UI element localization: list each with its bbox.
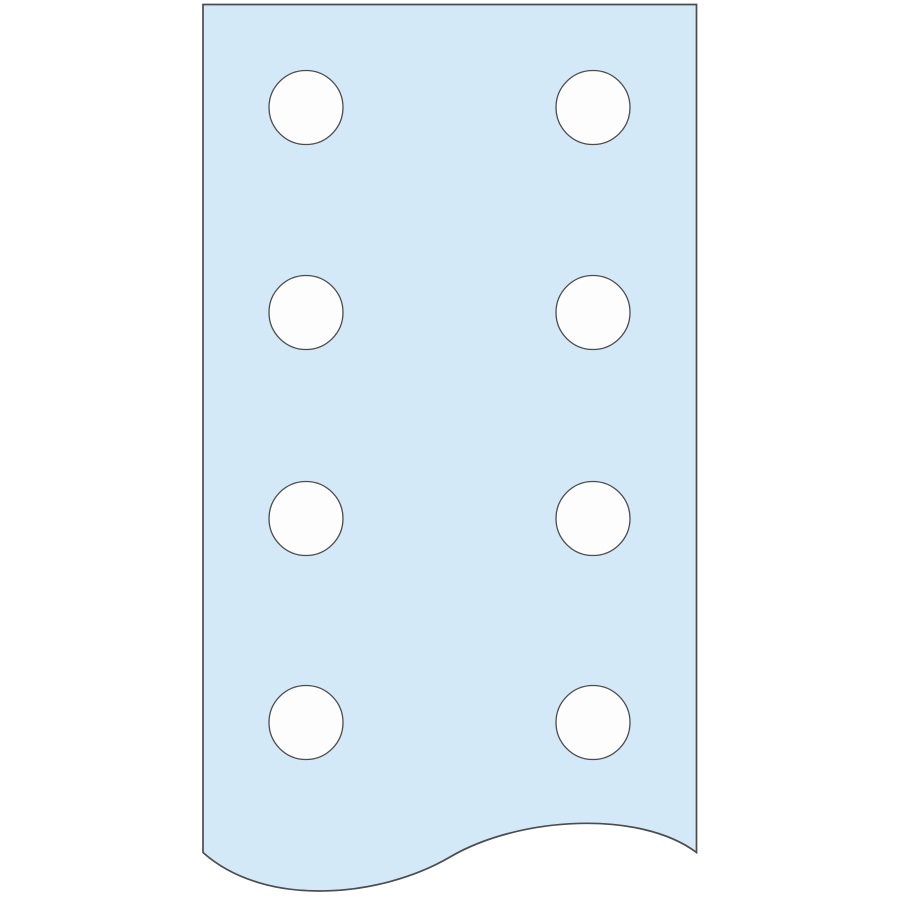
punched-hole [269,686,343,760]
perforated-bar-illustration [0,0,900,900]
punched-hole [556,482,630,556]
punched-hole [269,482,343,556]
punched-hole [269,276,343,350]
punched-hole [556,71,630,145]
punched-hole [556,686,630,760]
punched-hole [556,276,630,350]
illustration-stage [0,0,900,900]
punched-hole [269,71,343,145]
plate-shape [203,5,697,891]
